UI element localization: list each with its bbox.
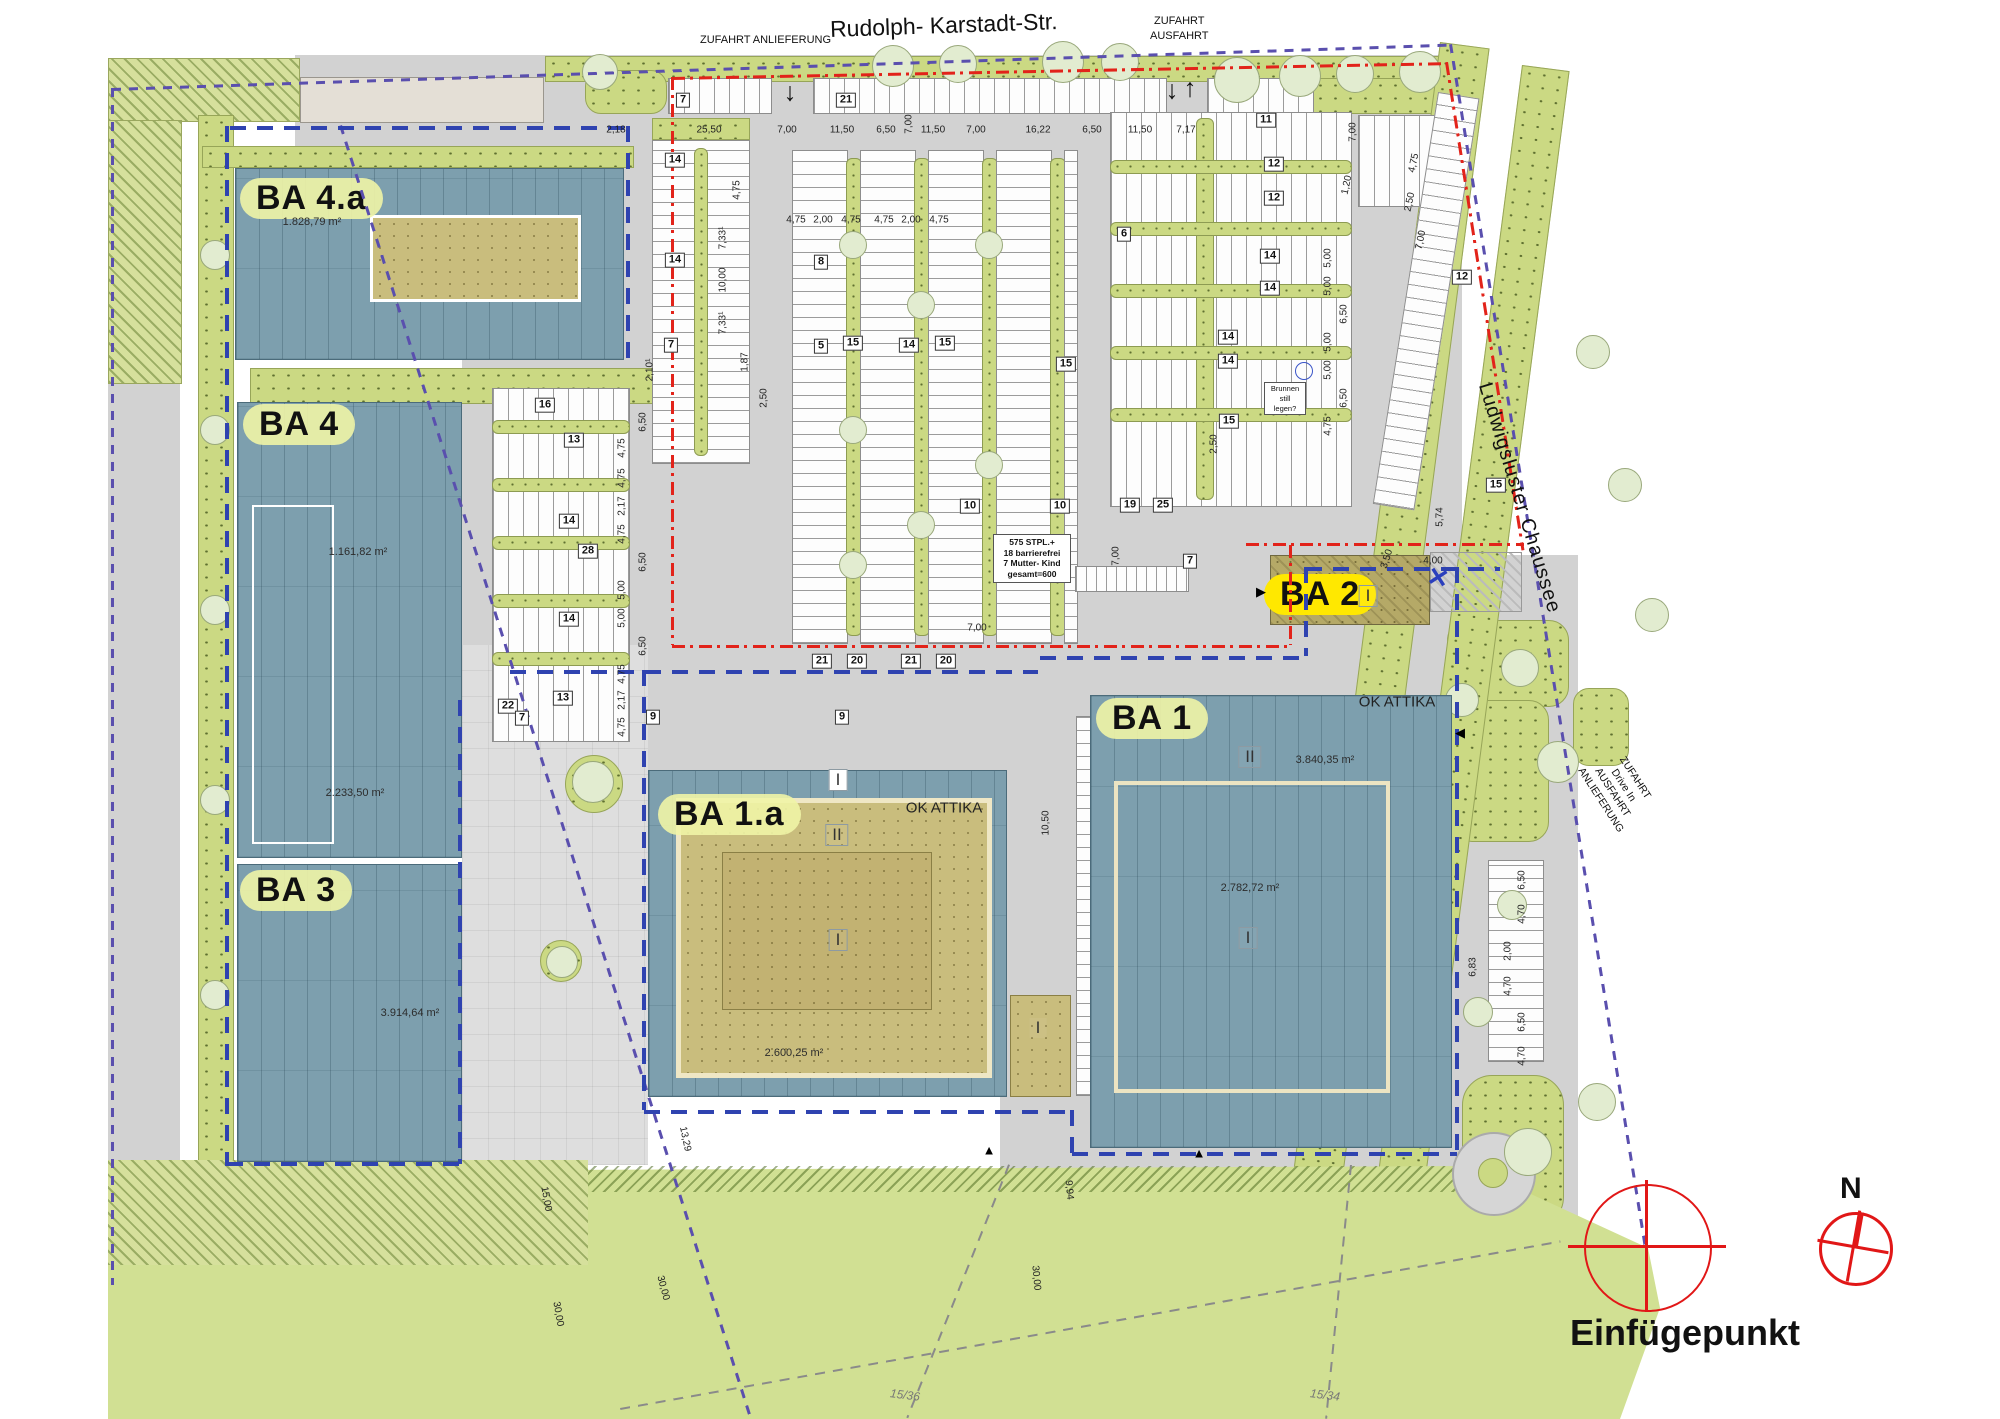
phase-ba4a-right [626, 126, 630, 360]
dimension-label: 7,17 [1176, 125, 1195, 136]
dimension-label: 7,00 [966, 125, 985, 136]
tree [1608, 468, 1642, 502]
tree [1279, 55, 1321, 97]
phase-ba3-right [458, 700, 462, 1164]
ba1a-attika: OK ATTIKA [906, 800, 982, 817]
dimension-label: 2,00 [1503, 941, 1514, 960]
ba1a-roof-inner [722, 852, 932, 1010]
ba4-area-lower: 2.233,50 m² [326, 787, 385, 799]
tree [1504, 1128, 1552, 1176]
dimension-label: 5,00 [617, 608, 628, 627]
parking-count-badge: 11 [1256, 113, 1276, 128]
phase-ba2-left [1304, 567, 1308, 656]
dimension-label: 4,75 [732, 180, 743, 199]
parking-count-badge: 21 [901, 654, 921, 669]
dimension-label: 7,33¹ [718, 312, 729, 335]
tree [1463, 997, 1493, 1027]
parking-count-badge: 15 [843, 336, 863, 351]
site-plan: BA 4.a 1.828,79 m² BA 4 1.161,82 m² 2.23… [0, 0, 2000, 1419]
dimension-label: 7,00 [1348, 122, 1359, 141]
dimension-label: 11,50 [830, 125, 854, 136]
tree [839, 416, 867, 444]
parking-count-badge: 7 [1183, 554, 1197, 569]
island-e1 [1110, 160, 1352, 174]
ba4a-area: 1.828,79 m² [283, 216, 342, 228]
ba1a-side-wing [1010, 995, 1071, 1097]
ba1a-roof-mark: I [829, 769, 848, 791]
dimension-label: 7,00 [904, 114, 915, 133]
entry-arrow-left-icon: ↓ [784, 77, 797, 108]
dimension-label: 2,17 [617, 496, 628, 515]
tree [546, 946, 578, 978]
phase-ba3-bottom [227, 1162, 462, 1166]
dimension-label: 25,50 [696, 125, 721, 136]
ba1a-storey-upper: II [825, 824, 848, 846]
well-icon [1295, 362, 1313, 380]
dimension-label: 4,75 [874, 215, 893, 226]
dimension-label: 2,18 [606, 125, 625, 136]
parking-count-badge: 15 [1219, 414, 1239, 429]
tree [1101, 43, 1139, 81]
dimension-label: 6,50 [1082, 125, 1101, 136]
ba1-label: BA 1 [1096, 698, 1208, 739]
stalls-ew-row [1075, 566, 1189, 592]
phase-west-left [225, 126, 229, 1166]
parking-count-badge: 15 [1056, 357, 1076, 372]
ba3-label: BA 3 [240, 870, 352, 911]
parking-count-badge: 21 [812, 654, 832, 669]
island-e3 [1110, 284, 1352, 298]
item: ZUFAHRT [1150, 14, 1208, 29]
phase-ba1a-left [642, 670, 646, 1110]
parking-count-badge: 14 [665, 153, 685, 168]
dimension-label: 11,50 [921, 125, 945, 136]
parking-count-badge: 21 [836, 93, 856, 108]
dimension-label: 5,74 [1435, 507, 1446, 526]
tree [1537, 741, 1579, 783]
ba1a-storey-lower: I [829, 929, 848, 951]
compass-label: N [1840, 1172, 1862, 1206]
item: AUSFAHRT [1150, 29, 1208, 44]
dimension-label: 7,00 [1111, 546, 1122, 565]
item: still [1265, 394, 1305, 404]
ba1a-side-mark: I [1030, 1018, 1047, 1038]
stalls-top-2 [813, 78, 1167, 114]
parking-count-badge: 20 [847, 654, 867, 669]
street-name-top: Rudolph- Karstadt-Str. [830, 8, 1058, 43]
dimension-label: 11,50 [1128, 125, 1152, 136]
dimension-label: 30,00 [1029, 1265, 1042, 1291]
dimension-label: 2,10¹ [645, 359, 656, 382]
tree [572, 761, 614, 803]
dimension-label: 5,00 [1323, 360, 1334, 379]
parking-count-badge: 19 [1120, 498, 1140, 513]
existing-building-strip [300, 77, 544, 123]
dimension-label: 4,75 [617, 438, 628, 457]
parking-count-badge: 7 [664, 338, 678, 353]
parking-count-badge: 13 [564, 433, 584, 448]
marker-ba2-left-icon: ▶ [1256, 584, 1266, 600]
green-bottom-left [108, 1160, 588, 1265]
dimension-label: 16,22 [1025, 125, 1050, 136]
dimension-label: 6,50 [638, 636, 649, 655]
dimension-label: 10,00 [718, 267, 729, 292]
ba1-storey-lower: I [1239, 927, 1258, 949]
stalls-block-b [492, 388, 630, 742]
green-left-upper [108, 120, 182, 384]
left-road [108, 320, 180, 1270]
ba1-area-upper: 3.840,35 m² [1296, 754, 1355, 766]
dimension-label: 4,75 [617, 468, 628, 487]
parking-count-badge: 7 [676, 93, 690, 108]
marker-ba1-bottom-icon: ▲ [1193, 1146, 1206, 1161]
parking-count-badge: 6 [1117, 227, 1131, 242]
dimension-label: 2,00 [901, 215, 920, 226]
tree [839, 551, 867, 579]
parking-count-badge: 25 [1153, 498, 1173, 513]
parking-count-badge: 12 [1264, 157, 1284, 172]
tree [1399, 51, 1441, 93]
ba1a-label: BA 1.a [658, 794, 801, 835]
island-b3 [492, 536, 630, 550]
tree [1214, 57, 1260, 103]
tree [839, 231, 867, 259]
dimension-label: 2,17 [617, 690, 628, 709]
entrance-label-top-left: ZUFAHRT ANLIEFERUNG [700, 34, 831, 46]
parking-count-badge: 14 [1260, 281, 1280, 296]
dimension-label: 6,50 [1517, 1012, 1528, 1031]
phase-south-top2 [1040, 656, 1306, 660]
parking-count-badge: 12 [1452, 270, 1472, 285]
phase-ba1a-bottom [644, 1110, 1072, 1114]
property-line-left [111, 88, 114, 1285]
parking-count-badge: 14 [1218, 330, 1238, 345]
dimension-label: 4,75 [786, 215, 805, 226]
ba1-storey-upper: II [1238, 746, 1261, 768]
tree [975, 451, 1003, 479]
tree [975, 231, 1003, 259]
ba4-inner-outline [252, 505, 334, 844]
roundabout-center [1478, 1158, 1508, 1188]
parking-count-badge: 14 [1260, 249, 1280, 264]
island-b4 [492, 594, 630, 608]
tree [939, 45, 977, 83]
item: 575 STPL.+ [995, 537, 1069, 548]
dimension-label: 7,33¹ [718, 227, 729, 250]
dimension-label: 7,00 [967, 623, 986, 634]
phase-east-right [1455, 567, 1459, 1153]
dimension-label: 5,00 [1323, 332, 1334, 351]
dimension-label: 7,00 [777, 125, 796, 136]
dimension-label: 6,50 [1339, 304, 1350, 323]
parking-count-badge: 7 [515, 711, 529, 726]
island-west-columns [694, 148, 708, 456]
parking-count-badge: 14 [559, 612, 579, 627]
parking-count-badge: 14 [665, 253, 685, 268]
insertion-cross-v [1645, 1180, 1648, 1312]
ba1-attika: OK ATTIKA [1359, 694, 1435, 711]
marker-ba1a-bottom-icon: ▲ [983, 1143, 996, 1158]
dimension-label: 6,50 [1517, 870, 1528, 889]
dimension-label: 5,00 [617, 580, 628, 599]
island-b1 [492, 420, 630, 434]
item: gesamt=600 [995, 569, 1069, 580]
dimension-label: 4,70 [1503, 976, 1514, 995]
tree [1336, 55, 1374, 93]
phase-ba1-bottom [1072, 1152, 1457, 1156]
ba4-area-upper: 1.161,82 m² [329, 546, 388, 558]
parking-count-badge: 15 [935, 336, 955, 351]
parking-count-badge: 10 [960, 499, 980, 514]
marker-ba1-right-icon: ◀ [1455, 725, 1465, 741]
tree [907, 291, 935, 319]
green-under-ba4a [250, 368, 704, 404]
entry-arrow-right-out-icon: ↑ [1184, 73, 1197, 104]
dimension-label: 4,75 [929, 215, 948, 226]
dimension-label: 4,70 [1517, 1046, 1528, 1065]
parking-count-badge: 12 [1264, 191, 1284, 206]
parking-count-badge: 9 [646, 710, 660, 725]
parking-count-badge: 14 [1218, 354, 1238, 369]
item: 18 barrierefrei [995, 548, 1069, 559]
dimension-label: 6,50 [1339, 388, 1350, 407]
tree [1501, 649, 1539, 687]
ba2-storey: I [1359, 585, 1378, 607]
parking-count-badge: 8 [814, 255, 828, 270]
ba4-label: BA 4 [243, 404, 355, 445]
ba1a-area: 2.600,25 m² [765, 1047, 824, 1059]
green-above-ba4a [202, 146, 634, 168]
dimension-label: 10,50 [1041, 810, 1052, 835]
phase-south-top1 [510, 670, 1038, 674]
dimension-label: 6,50 [876, 125, 895, 136]
dimension-label: 6,83 [1468, 957, 1479, 976]
dimension-label: 5,00 [1323, 248, 1334, 267]
insertion-point-label: Einfügepunkt [1570, 1312, 1800, 1354]
dimension-label: 5,00 [1323, 276, 1334, 295]
item: Brunnen [1265, 384, 1305, 394]
phase-ba1-left [1070, 1110, 1074, 1153]
dimension-label: 6,50 [638, 412, 649, 431]
dimension-label: 4,75 [617, 524, 628, 543]
dimension-label: 6,50 [638, 552, 649, 571]
parking-count-badge: 10 [1050, 499, 1070, 514]
parking-summary-note: 575 STPL.+18 barrierefrei7 Mutter- Kindg… [993, 534, 1071, 583]
island-e2 [1110, 222, 1352, 236]
red-line-bottom [672, 645, 1290, 648]
parking-count-badge: 15 [1486, 478, 1506, 493]
well-note: Brunnenstilllegen? [1264, 382, 1306, 415]
dimension-label: 13,29 [677, 1126, 693, 1153]
tree [1635, 598, 1669, 632]
red-line-ba2-h [1246, 543, 1524, 546]
parking-count-badge: 13 [553, 691, 573, 706]
dimension-label: 9,94 [1063, 1180, 1076, 1200]
item: legen? [1265, 404, 1305, 414]
tree [1576, 335, 1610, 369]
dimension-label: 4,00 [1423, 556, 1442, 567]
dimension-label: 1,87 [740, 352, 751, 371]
red-line-ba2-v [1289, 545, 1292, 645]
insertion-point-icon [1584, 1184, 1712, 1312]
item: 7 Mutter- Kind [995, 558, 1069, 569]
dimension-label: 4,70 [1517, 904, 1528, 923]
entry-arrow-right-in-icon: ↓ [1166, 75, 1179, 106]
tree [1578, 1083, 1616, 1121]
dimension-label: 2,50 [1209, 434, 1220, 453]
parking-count-badge: 28 [578, 544, 598, 559]
tree [907, 511, 935, 539]
parking-count-badge: 5 [814, 339, 828, 354]
ba1-area-lower: 2.782,72 m² [1221, 882, 1280, 894]
dimension-label: 2,50 [759, 388, 770, 407]
dimension-label: 4,75 [841, 215, 860, 226]
phase-ba2-top [1306, 567, 1500, 571]
parking-count-badge: 9 [835, 710, 849, 725]
dimension-label: 4,75 [1323, 416, 1334, 435]
dimension-label: 4,75 [617, 664, 628, 683]
island-b2 [492, 478, 630, 492]
phase-ba4a-top [230, 126, 630, 130]
parking-count-badge: 14 [559, 514, 579, 529]
parking-count-badge: 20 [936, 654, 956, 669]
parking-count-badge: 16 [535, 398, 555, 413]
ba3-area: 3.914,64 m² [381, 1007, 440, 1019]
entrance-label-top-right: ZUFAHRTAUSFAHRT [1150, 14, 1208, 44]
parking-count-badge: 14 [899, 338, 919, 353]
dimension-label: 4,75 [617, 717, 628, 736]
dimension-label: 2,00 [813, 215, 832, 226]
tree [872, 45, 914, 87]
tree [1042, 41, 1084, 83]
ba4a-roof-inset [370, 215, 581, 302]
